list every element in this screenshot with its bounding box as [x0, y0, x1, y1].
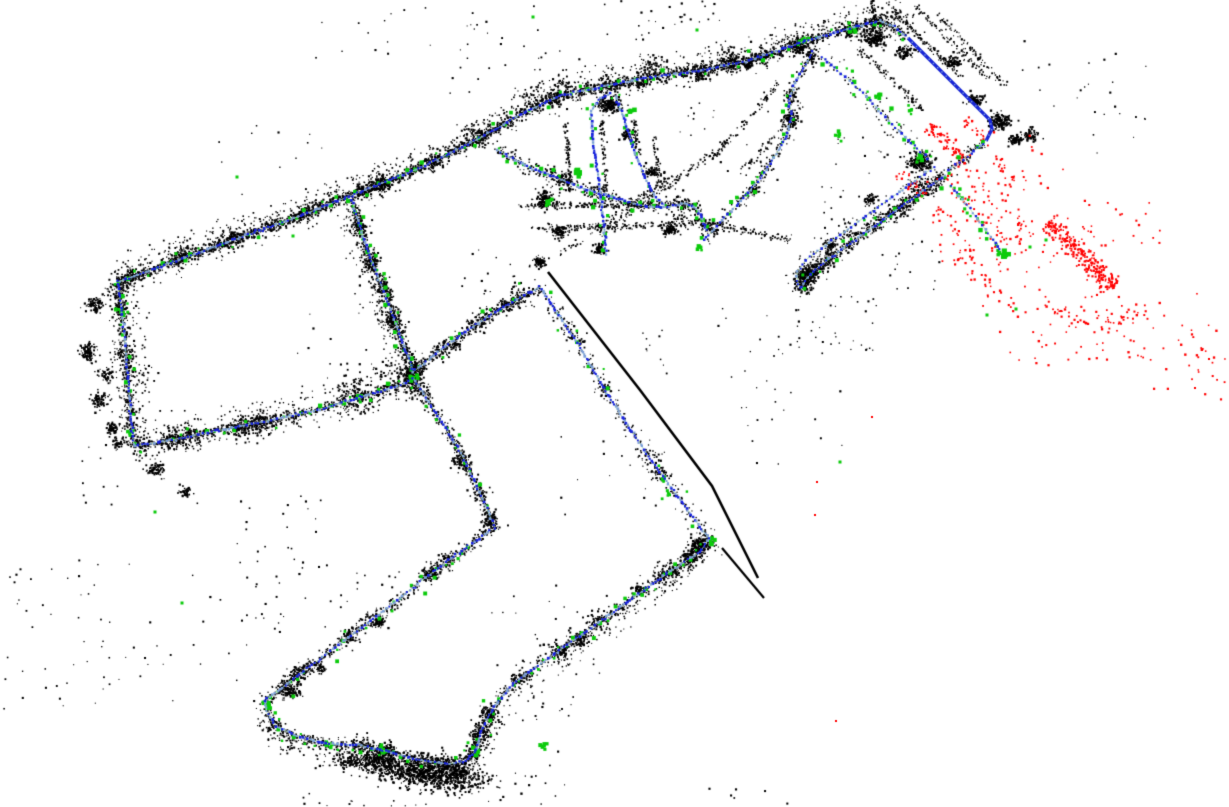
- slam-point-cloud-canvas: [0, 0, 1229, 807]
- slam-map-figure: [0, 0, 1229, 807]
